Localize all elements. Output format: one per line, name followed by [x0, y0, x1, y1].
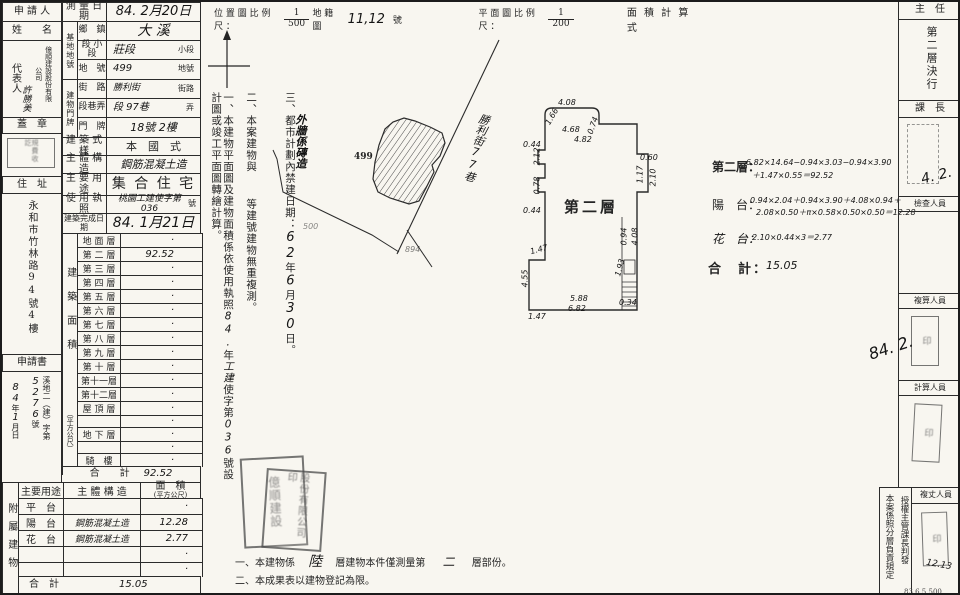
town-label: 鄉 鎮 — [77, 21, 107, 41]
location-scale-fraction: 1500 — [284, 9, 310, 29]
attached-use: 平 台 — [19, 499, 64, 514]
floor-row: 第 五 層· — [78, 289, 202, 303]
floor-row: · — [78, 441, 202, 453]
attached-row: 陽 台鋼筋混凝土造12.28 — [19, 514, 202, 530]
floor-row: 地 下 層· — [78, 427, 202, 441]
surveyor-seal: 印 — [921, 512, 949, 567]
plan-dim-label: 4.08 — [558, 98, 576, 107]
recheck-seal: 印 — [911, 316, 939, 366]
auth-note-line1: 授權主管課長判發 — [898, 496, 910, 588]
floor-label: 第 三 層 — [78, 262, 121, 275]
plan-dim-label: 5.88 — [570, 294, 588, 303]
floor-label: 第十一層 — [78, 374, 121, 387]
floor-label: 第 九 層 — [78, 346, 121, 359]
divider — [911, 488, 912, 595]
area-group-sublabel: （平方公尺） — [66, 401, 73, 461]
floor-row: 第 三 層· — [78, 261, 202, 275]
floor-row: 騎 樓· — [78, 453, 202, 467]
attached-structure — [64, 499, 141, 514]
floor-value: · — [121, 332, 202, 345]
floor-value: · — [121, 374, 202, 387]
attached-group-label: 附屬建物 — [5, 503, 16, 575]
attached-area: · — [141, 563, 202, 578]
use-value: 集 合 住 宅 — [106, 173, 201, 196]
floor-label: 屋 頂 層 — [78, 402, 121, 415]
calc-total-value: 15.05 — [766, 259, 798, 272]
floor-row: 第 七 層· — [78, 317, 202, 331]
plan-dim-label: 0.94 — [619, 228, 628, 246]
attached-row: 花 台鋼筋混凝土造2.77 — [19, 530, 202, 546]
floor-label: 第 五 層 — [78, 290, 121, 303]
floor-row: 第 十 層· — [78, 359, 202, 373]
section-label: 段 小段 — [77, 40, 107, 60]
attached-structure: 鋼筋混凝土造 — [64, 515, 141, 530]
plan-dim-label: 6.82 — [568, 304, 586, 313]
door-value: 18號 2樓 — [106, 117, 201, 138]
auth-note-line2: 本案係照分層負責規定 — [883, 494, 895, 590]
company-seal-2: 股份有限公司印 — [261, 468, 326, 552]
floor-row: 第 四 層· — [78, 275, 202, 289]
area-group-cell: 建築面積 （平方公尺） — [61, 233, 78, 467]
attached-total-row: 合 計 15.05 — [18, 576, 201, 595]
attached-row: 平 台· — [19, 498, 202, 514]
floor-row: 地 面 層· — [78, 233, 202, 247]
plan-dim-label: 2.12 — [532, 148, 541, 166]
street-label: 街 路 — [77, 79, 107, 99]
calculator-label: 計算人員 — [899, 380, 960, 396]
section-value: 莊段小段 — [106, 40, 201, 60]
floor-row: 第十一層· — [78, 373, 202, 387]
attached-area: 2.77 — [141, 531, 202, 546]
attached-use: 陽 台 — [19, 515, 64, 530]
floor-value: · — [121, 416, 202, 427]
plan-dim-label: 4.68 — [562, 125, 580, 134]
survey-result-sheet: 申 請 人 姓 名 代表人 億順建設股份有限公司 許勝美 蓋 章 規費收訖 住 … — [0, 0, 960, 595]
street-value: 勝利街街路 — [106, 79, 201, 99]
floor-value: · — [121, 276, 202, 289]
floor-value: · — [121, 402, 202, 415]
floor-value: · — [121, 318, 202, 331]
floor-value: · — [121, 346, 202, 359]
area-group-label: 建築面積 — [64, 240, 75, 390]
complete-date-value: 84. 1月21日 — [106, 213, 201, 234]
attached-structure — [64, 563, 141, 578]
cadastral-map-number: 11,12 — [348, 12, 385, 27]
approval-panel: 主 任 第二層決行 課 長 4. 2. 檢查人員 複算人員 印 計算人員 印 — [898, 2, 960, 488]
town-value: 大 溪 — [106, 21, 201, 41]
map-parcel-faint-1: 500 — [303, 222, 318, 231]
attached-structure: 鋼筋混凝土造 — [64, 531, 141, 546]
attached-header-structure: 主 體 構 造 — [64, 483, 141, 498]
floor-value: · — [121, 360, 202, 373]
floor-row: · — [78, 415, 202, 427]
floor-label: 地 面 層 — [78, 234, 121, 247]
attached-header-row: 主要用途 主 體 構 造 面 積(平方公尺) — [18, 482, 201, 499]
bottom-note-1: 一、本建物係 陸 層建物本件僅測量第 二 層部份。 — [235, 551, 512, 571]
plan-dim-label: 0.60 — [640, 153, 658, 162]
calc-planter-line: 2.10×0.44×3＝2.77 — [752, 232, 832, 243]
structure-label: 主 體 構 造 — [61, 155, 107, 174]
floor-label — [78, 442, 121, 453]
floor-label: 第 八 層 — [78, 332, 121, 345]
plan-dim-label: 2.10 — [648, 169, 657, 187]
floor-row: 第 二 層92.52 — [78, 247, 202, 261]
floor-plan-title: 第二層 — [564, 196, 618, 217]
attached-total-value: 15.05 — [119, 580, 148, 591]
calc-balcony-line1: 0.94×2.04＋0.94×3.90＋4.08×0.94＋ — [750, 195, 901, 206]
calc-total-label: 合 計： — [708, 258, 768, 277]
cadastral-map-suffix: 號 — [393, 13, 402, 26]
calc-floor-line1: 6.82×14.64−0.94×3.03−0.94×3.90 — [746, 158, 891, 167]
chief-label: 主 任 — [899, 2, 960, 20]
attached-structure — [64, 547, 141, 562]
floor-label: 第 十 層 — [78, 360, 121, 373]
inspector-label: 檢查人員 — [899, 196, 960, 212]
attached-use: 花 台 — [19, 531, 64, 546]
floor-label: 第 四 層 — [78, 276, 121, 289]
floor-value: · — [121, 388, 202, 401]
lane-value: 段 97巷弄 — [106, 98, 201, 118]
plan-dim-label: 4.55 — [520, 270, 529, 288]
plan-dim-label: 1.17 — [635, 166, 644, 184]
plan-dim-label: 0.34 — [619, 298, 637, 307]
floor-row: 第 六 層· — [78, 303, 202, 317]
floor-value: · — [121, 304, 202, 317]
floor-row: 第 八 層· — [78, 331, 202, 345]
floor-value: 92.52 — [121, 248, 202, 261]
attached-area: · — [141, 499, 202, 514]
license-value: 桃園工建使字第036號 — [106, 195, 201, 214]
plan-dim-label: 4.08 — [630, 228, 639, 246]
survey-date-label: 測 量 日 期 — [61, 2, 107, 22]
floor-value: · — [121, 262, 202, 275]
attached-row: · — [19, 546, 202, 562]
attached-use — [19, 563, 64, 578]
floor-label: 第 二 層 — [78, 248, 121, 261]
license-label: 使 用 執 照 — [61, 195, 107, 214]
attached-use — [19, 547, 64, 562]
lane-label: 段巷弄 — [77, 98, 107, 118]
calc-balcony-line2: 2.08×0.50＋π×0.58×0.50×0.50＝12.28 — [756, 207, 916, 218]
floor-value: · — [121, 428, 202, 441]
floor-value: · — [121, 442, 202, 453]
survey-date-value: 84. 2月20日 — [106, 2, 201, 22]
attached-header-use: 主要用途 — [19, 483, 64, 498]
floor-area-table: 地 面 層·第 二 層92.52第 三 層·第 四 層·第 五 層·第 六 層·… — [77, 233, 203, 467]
calc-floor-line2: ＋1.47×0.55＝92.52 — [752, 170, 833, 181]
site-group-label: 基地地號 — [65, 33, 73, 69]
floor-row: 第十二層· — [78, 387, 202, 401]
attached-table: 平 台·陽 台鋼筋混凝土造12.28花 台鋼筋混凝土造2.77·· — [18, 498, 203, 577]
site-group-cell: 基地地號 — [61, 21, 78, 80]
calculator-seal: 印 — [912, 403, 943, 462]
attached-area: 12.28 — [141, 515, 202, 530]
floor-label: 第 七 層 — [78, 318, 121, 331]
complete-date-label: 建築完成日期 — [61, 213, 107, 234]
attached-row: · — [19, 562, 202, 578]
left-column-divider — [2, 2, 63, 475]
floor-label — [78, 416, 121, 427]
plan-scale-fraction: 1200 — [548, 9, 574, 29]
plan-dim-label: 1.47 — [528, 312, 546, 321]
floor-label: 第十二層 — [78, 388, 121, 401]
plan-dim-label: 4.82 — [574, 135, 592, 144]
bottom-note-2: 二、本成果表以建物登記為限。 — [235, 572, 375, 587]
attached-area: · — [141, 547, 202, 562]
recheck-label: 複算人員 — [899, 293, 960, 309]
attached-header-area: 面 積(平方公尺) — [141, 483, 200, 498]
parcel-label: 地 號 — [77, 59, 107, 80]
section-chief-label: 課 長 — [899, 100, 960, 118]
floor-label: 第 六 層 — [78, 304, 121, 317]
floor-row: 第 九 層· — [78, 345, 202, 359]
surveyor-box: 本案係照分層負責規定 授權主管課長判發 複丈人員 印 12.13 — [879, 487, 960, 595]
parcel-value: 499地號 — [106, 59, 201, 80]
plan-dim-label: 0.44 — [523, 206, 541, 215]
structure-value: 鋼筋混凝土造 — [106, 155, 201, 174]
attached-group-cell: 附屬建物 — [2, 482, 19, 595]
decision-text: 第二層決行 — [923, 26, 939, 100]
floor-label: 地 下 層 — [78, 428, 121, 441]
print-code: 83.6.5,500 — [904, 588, 942, 595]
style-value: 本 國 式 — [106, 137, 201, 156]
floor-value: · — [121, 234, 202, 247]
floor-total-value: 92.52 — [144, 469, 173, 480]
map-parcel-number: 499 — [354, 152, 373, 162]
floor-row: 屋 頂 層· — [78, 401, 202, 415]
bldg-group-cell: 建物門牌 — [61, 79, 78, 138]
surveyor-label: 複丈人員 — [911, 488, 960, 504]
map-parcel-faint-2: 894 — [405, 245, 420, 254]
floor-value: · — [121, 290, 202, 303]
building-footprint — [373, 118, 445, 204]
bldg-group-label: 建物門牌 — [65, 91, 73, 127]
plan-dim-label: 0.78 — [532, 177, 541, 195]
